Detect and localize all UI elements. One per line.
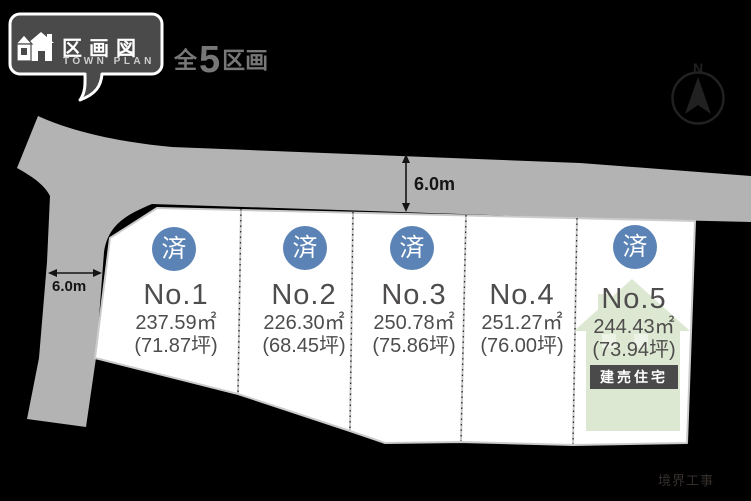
lot-2-sold-badge: 済 [283,226,327,270]
lot-5-area-sqm: 244.43㎡ [564,316,704,339]
lot-1-sold-badge: 済 [152,227,196,271]
lot-5-info: No.5 244.43㎡ (73.94坪) 建売住宅 [564,282,704,389]
lot-3-sold-badge: 済 [390,226,434,270]
lot-5-area-tsubo: (73.94坪) [564,339,704,362]
lot-1-area-sqm: 237.59㎡ [106,312,246,335]
total-lots-count: 5 [199,42,220,79]
lot-1-info: No.1 237.59㎡ (71.87坪) [106,278,246,358]
lot-5-sold-badge: 済 [613,225,657,269]
house-icon [14,31,58,63]
lot-1-number: No.1 [106,278,246,312]
road-width-label-left: 6.0m [52,278,86,295]
compass-north-label: N [693,60,703,76]
total-lots-label: 全 5 区画 [174,42,268,74]
lot-5-build-tag: 建売住宅 [590,365,678,389]
total-lots-suffix: 区画 [222,47,268,74]
road-width-label-top: 6.0m [414,174,455,195]
lot-1-area-tsubo: (71.87坪) [106,335,246,358]
lot-5-number: No.5 [564,282,704,316]
site-plan: N 区画図 TOWN PLAN 全 5 区画 6.0m 6.0m 済 済 済 済… [0,0,751,501]
total-lots-prefix: 全 [174,47,197,74]
plan-badge-subtitle: TOWN PLAN [63,56,155,67]
footer-note: 境界工事 [658,470,714,489]
compass-icon: N [673,60,724,124]
